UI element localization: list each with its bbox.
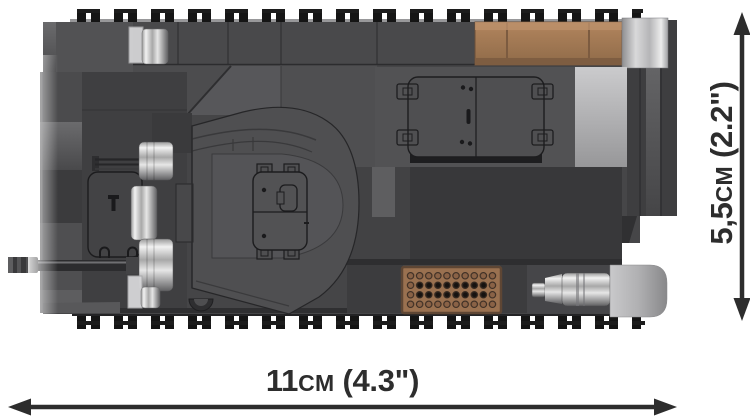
- silver-end-block-top: [622, 18, 668, 68]
- stowage-crate: [475, 22, 622, 65]
- turret-hatch: [253, 164, 309, 259]
- length-metric-unit: cm: [298, 370, 334, 396]
- length-imperial-value: (4.3"): [342, 363, 419, 398]
- silver-end-block-bottom: [610, 265, 667, 317]
- edge-fade: [28, 55, 58, 317]
- engine-deck-hatch: [397, 77, 553, 157]
- product-dimension-image: 11cm(4.3") 5,5cm(2.2"): [0, 0, 750, 417]
- width-imperial-value: (2.2"): [704, 81, 739, 158]
- engine-grille: [402, 267, 501, 313]
- turret: [176, 107, 359, 314]
- length-dimension-label: 11cm(4.3"): [0, 363, 685, 399]
- tank-illustration: [0, 0, 750, 417]
- headlight-roller: [129, 27, 168, 64]
- width-metric-unit: cm: [711, 166, 737, 202]
- side-panel-light: [575, 67, 627, 167]
- width-metric-value: 5,5: [704, 202, 739, 244]
- length-metric-value: 11: [266, 363, 298, 398]
- length-dimension-arrow: [8, 399, 677, 416]
- width-dimension-label: 5,5cm(2.2"): [704, 81, 740, 244]
- track-bottom: [72, 312, 647, 329]
